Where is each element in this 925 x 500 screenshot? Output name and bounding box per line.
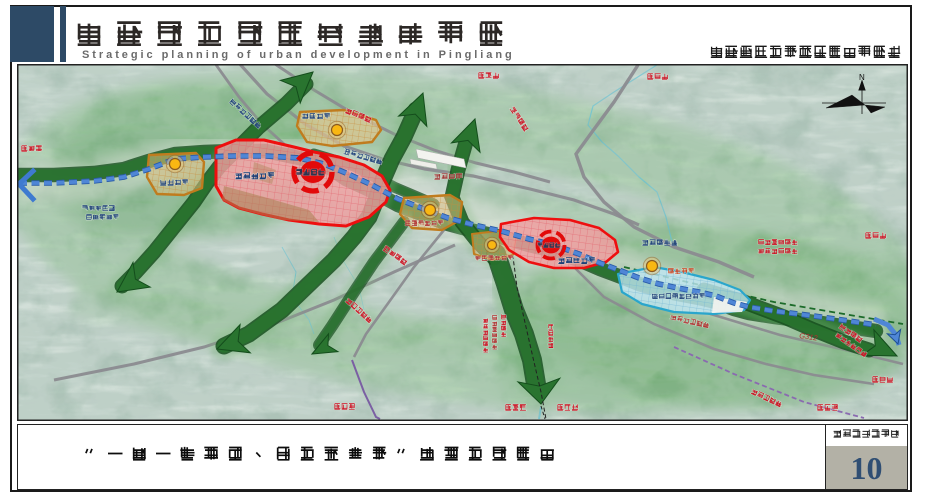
svg-text:N: N bbox=[859, 73, 865, 82]
